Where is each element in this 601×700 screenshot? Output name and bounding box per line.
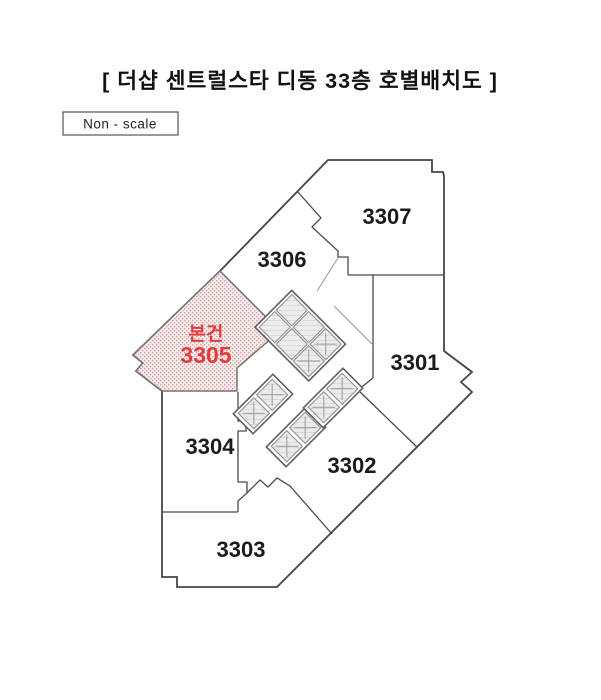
unit-label-3307: 3307 [363, 204, 412, 229]
unit-label-3302: 3302 [328, 453, 377, 478]
unit-label-3306: 3306 [258, 247, 307, 272]
unit-label-3305: 3305 [180, 342, 231, 368]
floorplan-canvas: [ 더샵 센트럴스타 디동 33층 호별배치도 ] Non - scale [0, 0, 601, 700]
unit-label-3303: 3303 [217, 537, 266, 562]
scale-note-label: Non - scale [83, 117, 157, 132]
page-title: [ 더샵 센트럴스타 디동 33층 호별배치도 ] [102, 69, 498, 93]
floorplan-page: [ 더샵 센트럴스타 디동 33층 호별배치도 ] Non - scale [0, 0, 601, 700]
unit-label-3301: 3301 [391, 350, 440, 375]
unit-label-3304: 3304 [186, 434, 236, 459]
